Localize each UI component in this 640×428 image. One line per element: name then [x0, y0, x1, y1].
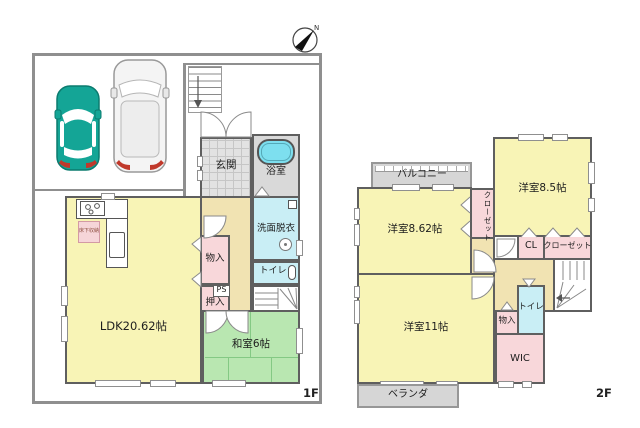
- bedroom-11-label: 洋室11帖: [362, 322, 490, 334]
- stove-burners-icon: [80, 201, 105, 216]
- window: [296, 240, 303, 256]
- folding-door-mark-storage-2f: [499, 301, 515, 311]
- window: [61, 286, 68, 306]
- window: [354, 286, 360, 298]
- door-arc-bedroom-862: [472, 249, 497, 274]
- ldk-label: LDK20.62帖: [70, 320, 197, 333]
- sedan-car-icon: [55, 83, 101, 173]
- window: [354, 224, 360, 246]
- window: [498, 381, 514, 388]
- bathroom-label: 浴室: [253, 166, 299, 177]
- wic-label: WIC: [495, 353, 545, 364]
- window: [150, 380, 176, 387]
- underfloor-storage-label: 床下収納: [78, 229, 100, 235]
- window: [588, 162, 595, 184]
- window: [197, 156, 203, 167]
- washroom-label: 洗面脱衣: [252, 224, 300, 234]
- window: [296, 328, 303, 354]
- site-inner-wall: [183, 63, 319, 65]
- window: [95, 380, 141, 387]
- window: [197, 170, 203, 181]
- window: [518, 134, 544, 141]
- door-arc-corridor-ldk: [202, 214, 228, 240]
- window: [522, 381, 532, 388]
- floor2-label: 2F: [596, 386, 612, 400]
- window: [432, 184, 454, 191]
- cl-label: CL: [517, 241, 545, 251]
- bedroom-862-label: 洋室8.62帖: [360, 224, 470, 236]
- folding-door-marks-closet-side: [459, 194, 471, 240]
- balcony-label: バルコニー: [376, 169, 468, 180]
- pipe-space-label: PS: [213, 286, 230, 295]
- parking-edge-line: [35, 189, 183, 191]
- van-car-icon: [111, 57, 169, 175]
- window: [354, 208, 360, 220]
- oshiire-label: 押入: [201, 298, 229, 308]
- window: [101, 193, 115, 200]
- tatami-line: [205, 357, 298, 358]
- stairs-1f-treads: [252, 285, 300, 312]
- window: [61, 316, 68, 342]
- storage-2f-label: 物入: [495, 317, 519, 326]
- closet-side-label: クローゼット: [474, 191, 491, 236]
- door-arc-washitsu: [204, 309, 250, 335]
- floor1-label: 1F: [303, 386, 319, 400]
- stairs-2f-treads: [553, 258, 592, 312]
- door-mark-toilet-2f: [521, 278, 537, 288]
- veranda-label: ベランダ: [362, 389, 454, 400]
- building-left-wall: [183, 63, 186, 198]
- compass-north-label: N: [314, 24, 319, 32]
- toilet-2f-label: トイレ: [517, 303, 545, 312]
- window: [392, 184, 420, 191]
- closet-2f-label: クローゼット: [543, 242, 592, 251]
- tatami-line: [228, 358, 229, 382]
- folding-door-marks-closet-row: [519, 226, 590, 238]
- toilet-1f-label: トイレ: [254, 267, 292, 277]
- window: [552, 134, 568, 141]
- compass-icon: N: [291, 23, 321, 55]
- storage-1f-label: 物入: [201, 254, 229, 264]
- window: [212, 380, 246, 387]
- steps-down-arrow-icon: [192, 72, 204, 110]
- window: [588, 198, 595, 212]
- floor-plan-canvas: N 玄関 浴室 洗面脱衣 トイレ: [0, 0, 640, 428]
- door-arc-bedroom-85: [495, 237, 517, 259]
- folding-door-mark-bath: [253, 186, 271, 197]
- sink-icon: [288, 200, 297, 209]
- washing-machine-dot: [284, 243, 287, 246]
- entrance-double-door-icon: [199, 111, 253, 138]
- toilet-icon: [288, 265, 296, 280]
- bathtub-inner-line: [261, 143, 291, 161]
- tatami-line: [271, 358, 272, 382]
- door-arc-bedroom-11: [470, 275, 495, 300]
- sliding-door-mark: [190, 271, 203, 288]
- washitsu-label: 和室6帖: [202, 339, 300, 351]
- sliding-door-mark: [190, 236, 203, 253]
- genkan-label: 玄関: [204, 160, 248, 172]
- kitchen-sink-icon: [109, 232, 125, 258]
- window: [354, 300, 360, 324]
- bedroom-85-label: 洋室8.5帖: [496, 183, 589, 195]
